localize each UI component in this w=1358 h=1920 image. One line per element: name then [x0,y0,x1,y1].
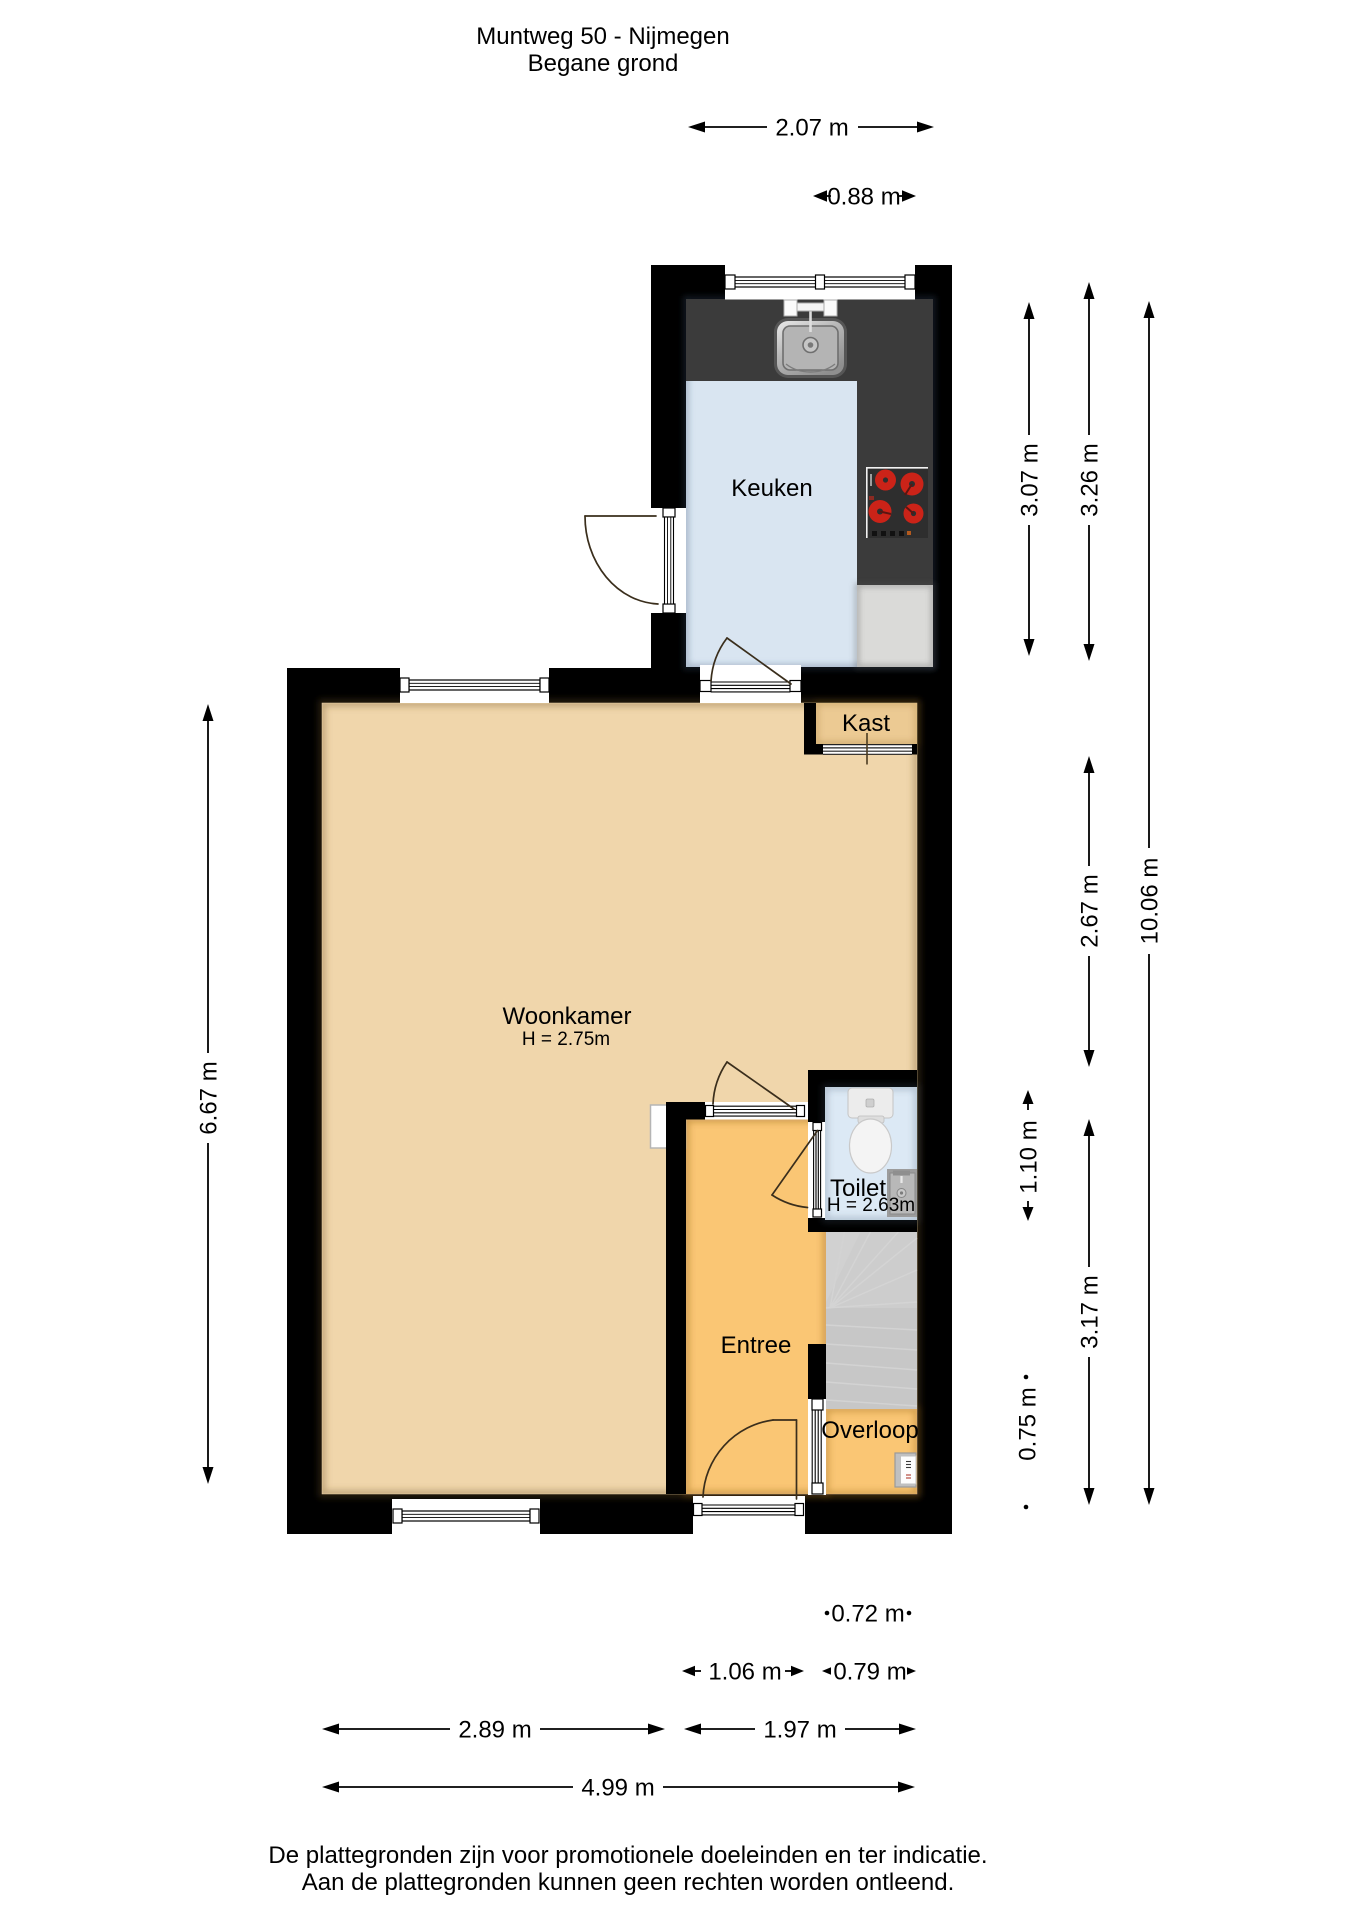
svg-text:Aan de plattegronden kunnen ge: Aan de plattegronden kunnen geen rechten… [302,1869,955,1896]
svg-text:3.26 m: 3.26 m [1076,443,1103,516]
svg-text:2.89 m: 2.89 m [458,1716,531,1743]
svg-text:Overloop: Overloop [821,1417,918,1444]
svg-text:Woonkamer: Woonkamer [503,1003,632,1030]
svg-text:Begane grond: Begane grond [528,50,679,77]
svg-text:Muntweg 50 - Nijmegen: Muntweg 50 - Nijmegen [476,23,729,50]
svg-text:H = 2.75m: H = 2.75m [522,1029,610,1050]
svg-text:Entree: Entree [721,1332,792,1359]
svg-text:0.79 m: 0.79 m [833,1658,906,1685]
svg-text:6.67 m: 6.67 m [195,1061,222,1134]
svg-text:1.06 m: 1.06 m [708,1658,781,1685]
svg-text:1.97 m: 1.97 m [763,1716,836,1743]
svg-text:0.88 m: 0.88 m [827,183,900,210]
svg-text:10.06 m: 10.06 m [1136,858,1163,945]
svg-text:4.99 m: 4.99 m [581,1774,654,1801]
svg-text:Keuken: Keuken [731,475,812,502]
svg-text:3.17 m: 3.17 m [1076,1275,1103,1348]
svg-text:1.10 m: 1.10 m [1015,1120,1042,1193]
svg-text:De plattegronden zijn voor pro: De plattegronden zijn voor promotionele … [268,1842,987,1869]
svg-text:2.07 m: 2.07 m [775,114,848,141]
svg-text:0.72 m: 0.72 m [831,1600,904,1627]
svg-text:Kast: Kast [842,710,890,737]
svg-text:H = 2.63m: H = 2.63m [827,1195,915,1216]
svg-text:3.07 m: 3.07 m [1016,443,1043,516]
svg-text:2.67 m: 2.67 m [1076,874,1103,947]
svg-text:0.75 m: 0.75 m [1014,1387,1041,1460]
